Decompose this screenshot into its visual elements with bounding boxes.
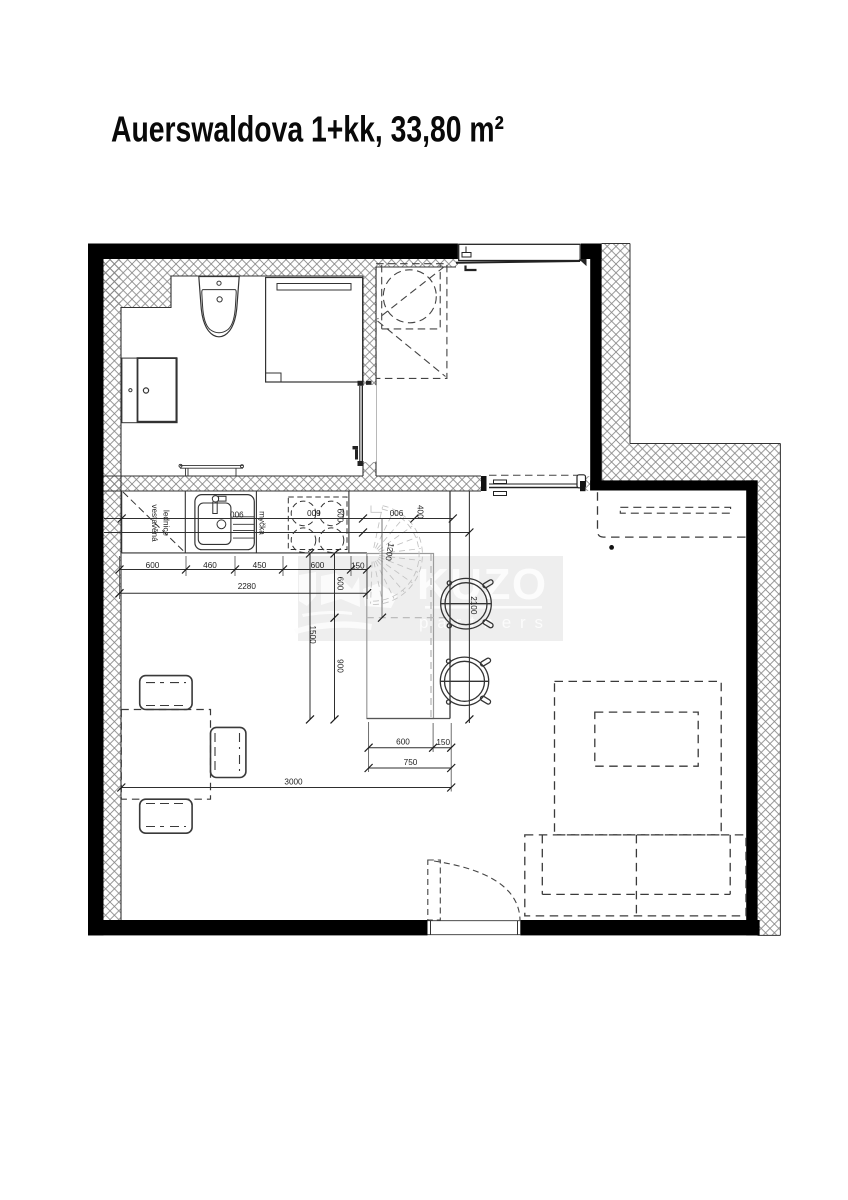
svg-text:750: 750 — [404, 758, 418, 767]
svg-text:vestavěná: vestavěná — [150, 504, 159, 542]
svg-text:600: 600 — [307, 508, 321, 517]
svg-text:150: 150 — [436, 738, 450, 747]
svg-text:3000: 3000 — [284, 778, 303, 787]
svg-text:450: 450 — [253, 561, 267, 570]
svg-text:400: 400 — [415, 505, 424, 519]
svg-text:600: 600 — [336, 509, 345, 523]
svg-text:1500: 1500 — [308, 625, 317, 644]
svg-text:150: 150 — [351, 562, 365, 571]
svg-text:600: 600 — [311, 561, 325, 570]
svg-text:2100: 2100 — [469, 596, 478, 615]
svg-text:900: 900 — [335, 659, 344, 673]
svg-text:900: 900 — [389, 508, 403, 517]
svg-text:600: 600 — [335, 577, 344, 591]
svg-text:partners: partners — [419, 613, 552, 632]
svg-text:myčka: myčka — [258, 511, 267, 535]
svg-text:600: 600 — [396, 738, 410, 747]
svg-text:2280: 2280 — [238, 582, 257, 591]
svg-text:600: 600 — [146, 561, 160, 570]
svg-text:900: 900 — [230, 510, 244, 519]
svg-text:460: 460 — [203, 561, 217, 570]
svg-text:Auerswaldova 1+kk, 33,80 m²: Auerswaldova 1+kk, 33,80 m² — [111, 109, 504, 150]
